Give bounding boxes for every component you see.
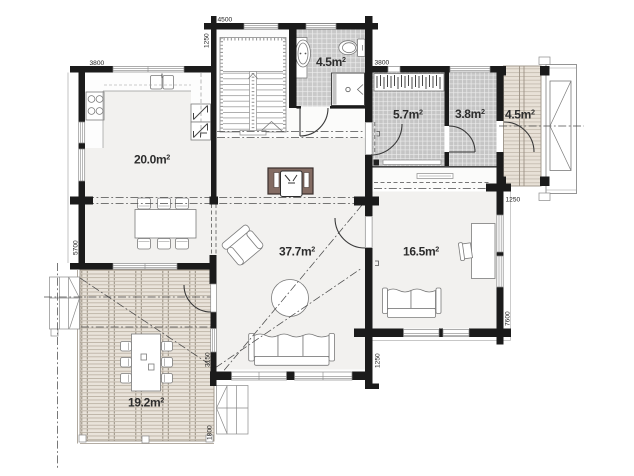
svg-text:19.2m2: 19.2m2 (128, 396, 164, 410)
svg-text:5.7m2: 5.7m2 (393, 108, 423, 122)
svg-text:20.0m2: 20.0m2 (134, 153, 170, 167)
svg-text:3150: 3150 (205, 352, 212, 367)
svg-text:4.5m2: 4.5m2 (505, 108, 535, 122)
svg-text:16.5m2: 16.5m2 (403, 245, 439, 259)
svg-text:5700: 5700 (73, 240, 80, 255)
svg-text:3.8m2: 3.8m2 (455, 107, 485, 121)
svg-text:7600: 7600 (505, 311, 512, 326)
svg-text:37.7m2: 37.7m2 (279, 245, 315, 259)
svg-text:1250: 1250 (375, 353, 382, 368)
svg-text:1250: 1250 (204, 33, 211, 48)
svg-text:4500: 4500 (218, 17, 233, 24)
svg-text:3800: 3800 (90, 60, 105, 67)
svg-text:1250: 1250 (506, 197, 521, 204)
svg-text:1800: 1800 (207, 425, 214, 440)
svg-text:3800: 3800 (375, 60, 390, 67)
svg-text:4.5m2: 4.5m2 (316, 55, 346, 69)
